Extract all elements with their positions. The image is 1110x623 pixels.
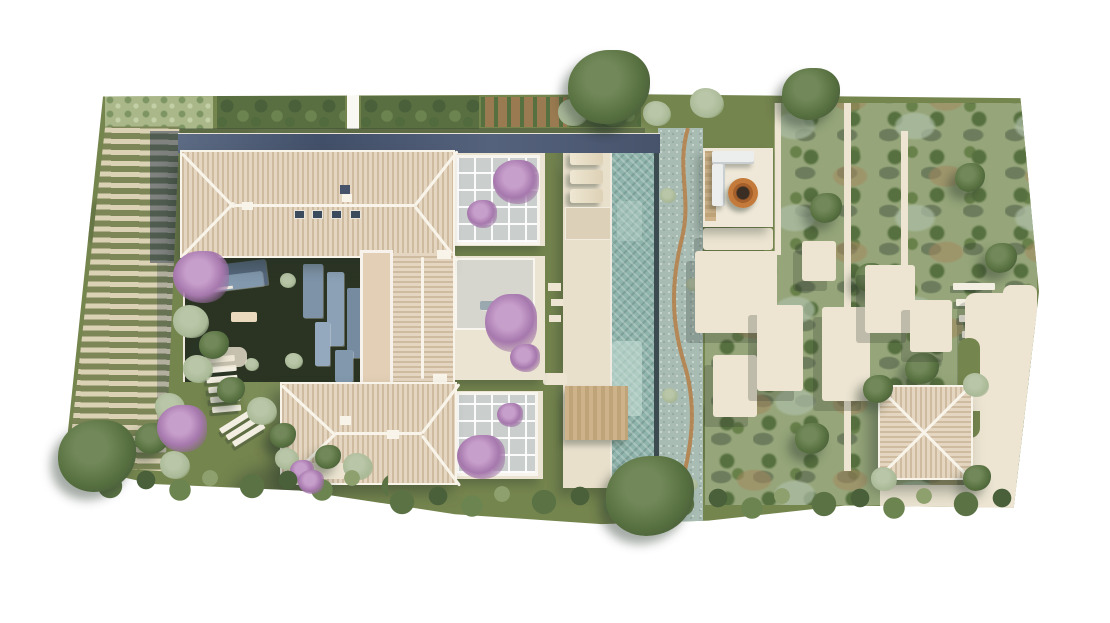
sun-lounger	[570, 170, 603, 184]
pool-timber-deck	[565, 386, 628, 440]
chimney	[242, 202, 253, 210]
hedgerow-bottom	[88, 462, 388, 510]
hip-ridge	[181, 152, 235, 208]
bougainvillea	[467, 200, 497, 228]
terrace-middle	[451, 256, 545, 380]
hedge-bed-2	[361, 96, 479, 129]
deck-slab	[565, 207, 612, 240]
stone-path	[757, 305, 803, 391]
firepit-patio	[703, 148, 773, 227]
hedge-shrub	[643, 101, 671, 126]
hip-ridge	[421, 383, 461, 434]
stepping-stone	[548, 283, 561, 291]
chimney	[387, 430, 399, 439]
skylight	[294, 210, 305, 219]
stone-path	[865, 265, 915, 333]
chimney	[437, 250, 451, 259]
main-ridge	[335, 432, 422, 435]
chimney	[342, 194, 352, 202]
bougainvillea	[457, 435, 505, 479]
wing-ridge	[421, 257, 424, 379]
olive-tree	[795, 423, 829, 454]
glass-panel	[335, 350, 353, 382]
purple-flowering-tree	[157, 405, 207, 452]
sun-lounger	[570, 151, 603, 165]
bougainvillea	[497, 403, 523, 427]
grove-path-vertical-2	[844, 103, 851, 471]
main-ridge	[234, 204, 415, 207]
bougainvillea	[493, 160, 539, 204]
garden-shrub	[173, 305, 209, 338]
pergola-south	[454, 392, 538, 476]
hedgerow-bottom	[660, 480, 1020, 524]
stepping-stone	[549, 315, 561, 322]
site-plan-rendering	[0, 0, 1110, 623]
stepping-stone	[551, 299, 563, 306]
main-house-roof-north-wing	[180, 150, 455, 258]
skylight	[331, 210, 342, 219]
hedgerow-bottom	[380, 478, 630, 524]
glass-panel	[315, 322, 330, 366]
hip-ridge	[414, 150, 459, 206]
pavilion-roof	[878, 385, 973, 480]
step	[953, 283, 995, 290]
skylight	[312, 210, 323, 219]
vegetable-rows	[481, 97, 567, 127]
flat-roof-walkway	[360, 250, 393, 386]
bougainvillea	[510, 344, 540, 372]
lawn-path	[543, 373, 567, 385]
pool-light-patch	[617, 201, 642, 241]
creek-shrub	[662, 388, 678, 403]
garden-shrub	[247, 397, 277, 425]
courtyard-bench	[231, 312, 257, 322]
estate-grounds	[65, 93, 1040, 525]
east-wing-roof	[393, 253, 455, 383]
step	[212, 405, 241, 414]
olive-tree	[810, 193, 842, 223]
olive-tree	[955, 163, 985, 192]
hip-ridge	[181, 202, 235, 258]
pavilion-shrub	[963, 373, 989, 397]
groundcover-bed	[105, 95, 213, 129]
outdoor-sofa-top	[712, 151, 754, 164]
stone-path	[802, 241, 836, 281]
stone-path	[713, 355, 757, 417]
glass-panel	[303, 264, 323, 318]
olive-tree	[905, 353, 939, 384]
stone-path	[910, 300, 952, 352]
pergola-northeast	[454, 155, 540, 245]
courtyard-shrub	[245, 358, 259, 371]
fire-pit	[728, 178, 758, 208]
garden-shrub	[183, 355, 213, 383]
purple-flowering-tree	[173, 251, 229, 303]
olive-tree	[985, 243, 1017, 273]
hedge-bed-1	[217, 96, 345, 129]
stone-path	[703, 228, 773, 250]
grove-path-vertical-1	[773, 103, 781, 255]
outdoor-sofa-left	[712, 164, 725, 206]
skylight	[350, 210, 361, 219]
sun-lounger	[570, 189, 603, 203]
purple-hedge-bloom	[298, 470, 324, 494]
feature-tree-bottom	[606, 456, 694, 536]
pavilion-connector-path	[970, 395, 1014, 411]
roof-vent	[340, 185, 350, 194]
courtyard-shrub	[280, 273, 296, 288]
courtyard-shrub	[285, 353, 303, 369]
driveway-upper	[1003, 285, 1037, 329]
chimney	[340, 416, 351, 425]
garden-gap-path	[347, 95, 359, 129]
creek-shrub	[660, 188, 676, 203]
feature-shrub-top	[690, 88, 724, 118]
